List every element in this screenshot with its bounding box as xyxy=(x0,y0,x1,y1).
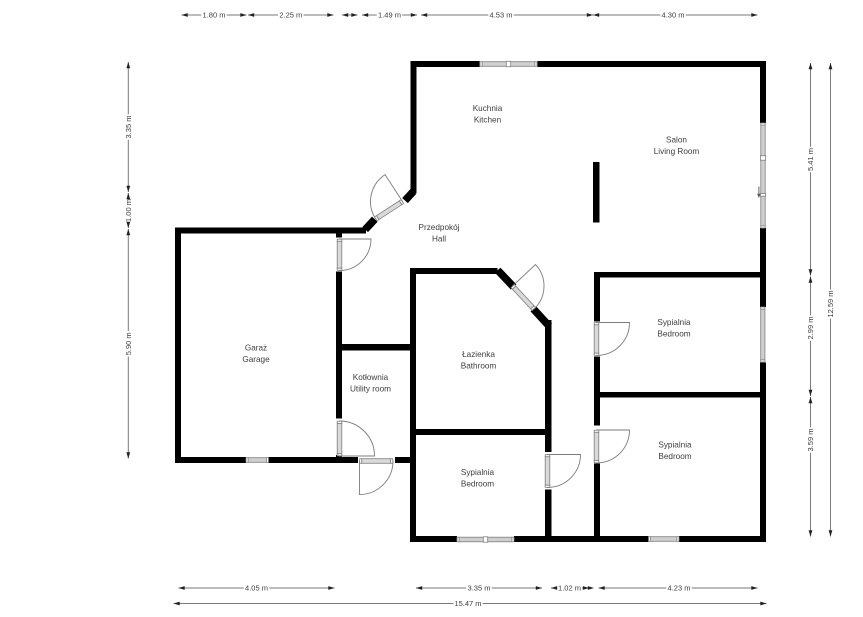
svg-text:Kuchnia: Kuchnia xyxy=(473,104,503,113)
svg-text:Bedroom: Bedroom xyxy=(658,452,691,461)
svg-text:Bathroom: Bathroom xyxy=(461,361,497,370)
svg-text:4.23 m: 4.23 m xyxy=(668,584,691,593)
svg-text:5.41 m: 5.41 m xyxy=(806,148,815,171)
svg-text:Sypialnia: Sypialnia xyxy=(657,318,691,327)
svg-text:12.59 m: 12.59 m xyxy=(826,290,835,317)
svg-text:2.25 m: 2.25 m xyxy=(279,11,302,20)
svg-text:5.90 m: 5.90 m xyxy=(124,332,133,355)
svg-text:Living Room: Living Room xyxy=(654,147,700,156)
svg-text:2.99 m: 2.99 m xyxy=(806,317,815,340)
svg-text:Sypialnia: Sypialnia xyxy=(461,468,495,477)
svg-text:4.53 m: 4.53 m xyxy=(490,11,513,20)
svg-text:Kotłownia: Kotłownia xyxy=(353,373,389,382)
svg-text:4.30 m: 4.30 m xyxy=(662,11,685,20)
svg-text:Garaż: Garaż xyxy=(245,344,267,353)
svg-text:1.80 m: 1.80 m xyxy=(203,11,226,20)
svg-text:Hall: Hall xyxy=(432,234,446,243)
svg-text:Bedroom: Bedroom xyxy=(657,329,690,338)
svg-text:1.49 m: 1.49 m xyxy=(378,11,401,20)
svg-text:15.47 m: 15.47 m xyxy=(454,599,481,608)
svg-text:Łazienka: Łazienka xyxy=(462,350,495,359)
svg-text:Garage: Garage xyxy=(242,355,270,364)
svg-text:Sypialnia: Sypialnia xyxy=(658,441,692,450)
svg-text:1.02 m: 1.02 m xyxy=(558,584,581,593)
svg-text:Salon: Salon xyxy=(666,136,687,145)
svg-text:Kitchen: Kitchen xyxy=(474,115,502,124)
svg-text:3.35 m: 3.35 m xyxy=(468,584,491,593)
svg-text:3.59 m: 3.59 m xyxy=(806,429,815,452)
svg-text:3.35 m: 3.35 m xyxy=(124,116,133,139)
svg-text:Utility room: Utility room xyxy=(350,384,391,393)
svg-text:1.00 m: 1.00 m xyxy=(124,199,133,222)
svg-text:Przedpokój: Przedpokój xyxy=(419,223,460,232)
svg-text:4.05 m: 4.05 m xyxy=(245,584,268,593)
svg-text:Bedroom: Bedroom xyxy=(461,479,494,488)
